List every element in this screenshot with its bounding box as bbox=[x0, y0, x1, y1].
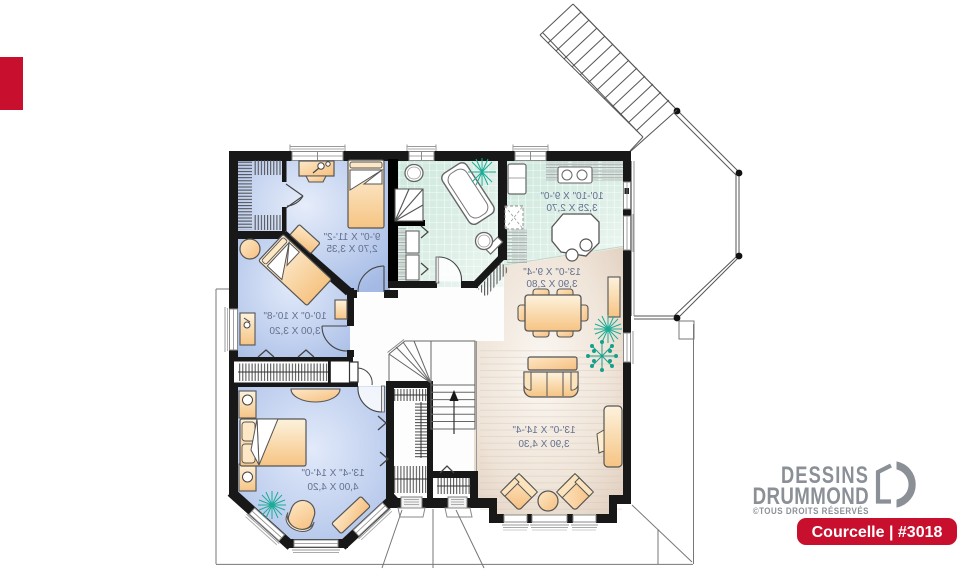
svg-text:13'-0" X 9'-4": 13'-0" X 9'-4" bbox=[523, 267, 581, 278]
svg-text:Courcelle | #3018: Courcelle | #3018 bbox=[812, 524, 943, 541]
svg-text:3,90 X 2,80: 3,90 X 2,80 bbox=[526, 279, 578, 290]
svg-text:13'-4" X 14'-0": 13'-4" X 14'-0" bbox=[301, 468, 365, 479]
svg-text:2,70 X 3,35: 2,70 X 3,35 bbox=[326, 244, 378, 255]
svg-text:4,00 X 4,20: 4,00 X 4,20 bbox=[307, 482, 359, 493]
svg-text:3,00 X 3,20: 3,00 X 3,20 bbox=[269, 326, 321, 337]
svg-text:3,90 X 4,30: 3,90 X 4,30 bbox=[518, 439, 570, 450]
svg-text:10'-10" X 9'-0": 10'-10" X 9'-0" bbox=[540, 191, 604, 202]
svg-text:©TOUS DROITS RÉSERVÉS: ©TOUS DROITS RÉSERVÉS bbox=[753, 505, 869, 516]
svg-text:9'-0" X 11'-2": 9'-0" X 11'-2" bbox=[323, 232, 380, 243]
svg-text:10'-0" X 10'-8": 10'-0" X 10'-8" bbox=[263, 311, 327, 322]
svg-text:3,25 X 2,70: 3,25 X 2,70 bbox=[546, 203, 598, 214]
svg-text:13'-0" X 14'-4": 13'-0" X 14'-4" bbox=[512, 425, 576, 436]
